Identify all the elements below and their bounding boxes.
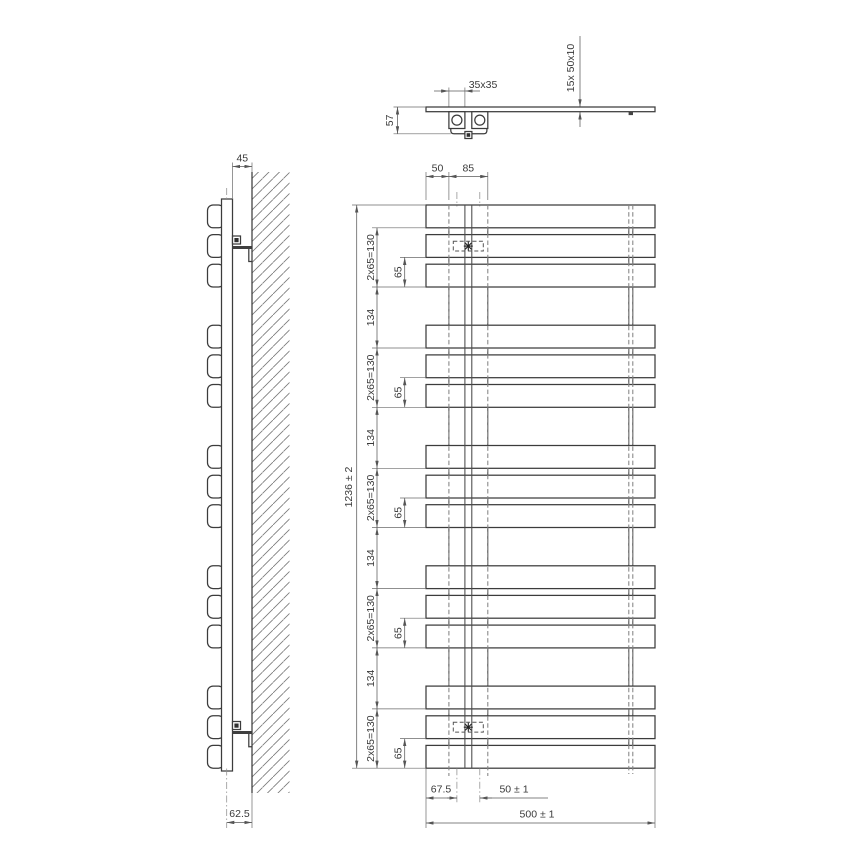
flat-bar <box>426 505 655 528</box>
flat-bar <box>426 264 655 287</box>
flat-bar <box>426 205 655 228</box>
collector-side-profile <box>222 199 233 771</box>
flat-tube-top-profile <box>426 107 655 112</box>
tube-spec-label: 15x 50x10 <box>565 44 577 93</box>
flat-bar <box>426 686 655 709</box>
top-dim-left-label: 50 <box>432 163 444 175</box>
group-pitch-label: 2x65=130 <box>365 715 377 762</box>
top-dim-right-label: 85 <box>462 163 474 175</box>
flat-bar <box>426 355 655 378</box>
flat-bar <box>426 325 655 348</box>
group-gap-label: 134 <box>365 669 377 687</box>
height-chain-dimension: 2x65=130 134 2x65=130 134 2x65=130 134 2… <box>365 228 377 768</box>
overall-width-label: 500 ± 1 <box>520 809 555 821</box>
drawing-canvas: 15x 50x10 35x35 57 <box>0 0 868 868</box>
bar-pitch-label: 65 <box>393 747 405 759</box>
overall-height-dimension: 1236 ± 2 <box>343 205 426 768</box>
radiator-technical-drawing: 15x 50x10 35x35 57 <box>0 0 868 868</box>
group-pitch-label: 2x65=130 <box>365 354 377 401</box>
bar-pitch-label: 65 <box>393 627 405 639</box>
side-view: 45 62.5 <box>208 153 290 829</box>
bar-pitch-label: 65 <box>393 507 405 519</box>
bottom-dim-left-label: 67.5 <box>431 784 452 796</box>
flat-bar <box>426 566 655 589</box>
flat-bar <box>426 745 655 768</box>
bottom-dim-center-label: 50 ± 1 <box>499 784 528 796</box>
bottom-offset-label: 62.5 <box>229 808 250 820</box>
bracket-size-label: 35x35 <box>469 79 498 91</box>
wall-offset-label: 45 <box>236 153 248 165</box>
flat-bar <box>426 446 655 469</box>
wall-hatch <box>252 172 290 793</box>
depth-label: 57 <box>384 114 396 126</box>
wall-bracket-top-side <box>233 236 253 262</box>
flat-bar <box>426 716 655 739</box>
bar-pitch-label: 65 <box>393 266 405 278</box>
bar-pitch-dimensions: 65 65 65 65 65 <box>393 257 405 768</box>
clamp-screw-head <box>467 133 471 137</box>
group-pitch-label: 2x65=130 <box>365 595 377 642</box>
chain-extension-lines <box>372 228 426 739</box>
bar-pitch-label: 65 <box>393 387 405 399</box>
flat-bar <box>426 385 655 408</box>
group-pitch-label: 2x65=130 <box>365 234 377 281</box>
flat-bar <box>426 475 655 498</box>
overall-height-label: 1236 ± 2 <box>343 466 355 507</box>
group-gap-label: 134 <box>365 549 377 567</box>
front-bars <box>426 205 655 768</box>
group-gap-label: 134 <box>365 429 377 447</box>
flat-bar <box>426 595 655 618</box>
bottom-dimensions: 67.5 50 ± 1 500 ± 1 <box>426 768 655 828</box>
flat-bar <box>426 235 655 258</box>
right-support-tube-top <box>629 112 633 115</box>
wall-bracket-bottom-side <box>233 722 253 747</box>
group-gap-label: 134 <box>365 309 377 327</box>
group-pitch-label: 2x65=130 <box>365 475 377 522</box>
flat-bar <box>426 625 655 648</box>
top-view: 15x 50x10 35x35 57 <box>384 36 655 139</box>
front-view: 50 85 1236 ± 2 <box>343 163 655 829</box>
